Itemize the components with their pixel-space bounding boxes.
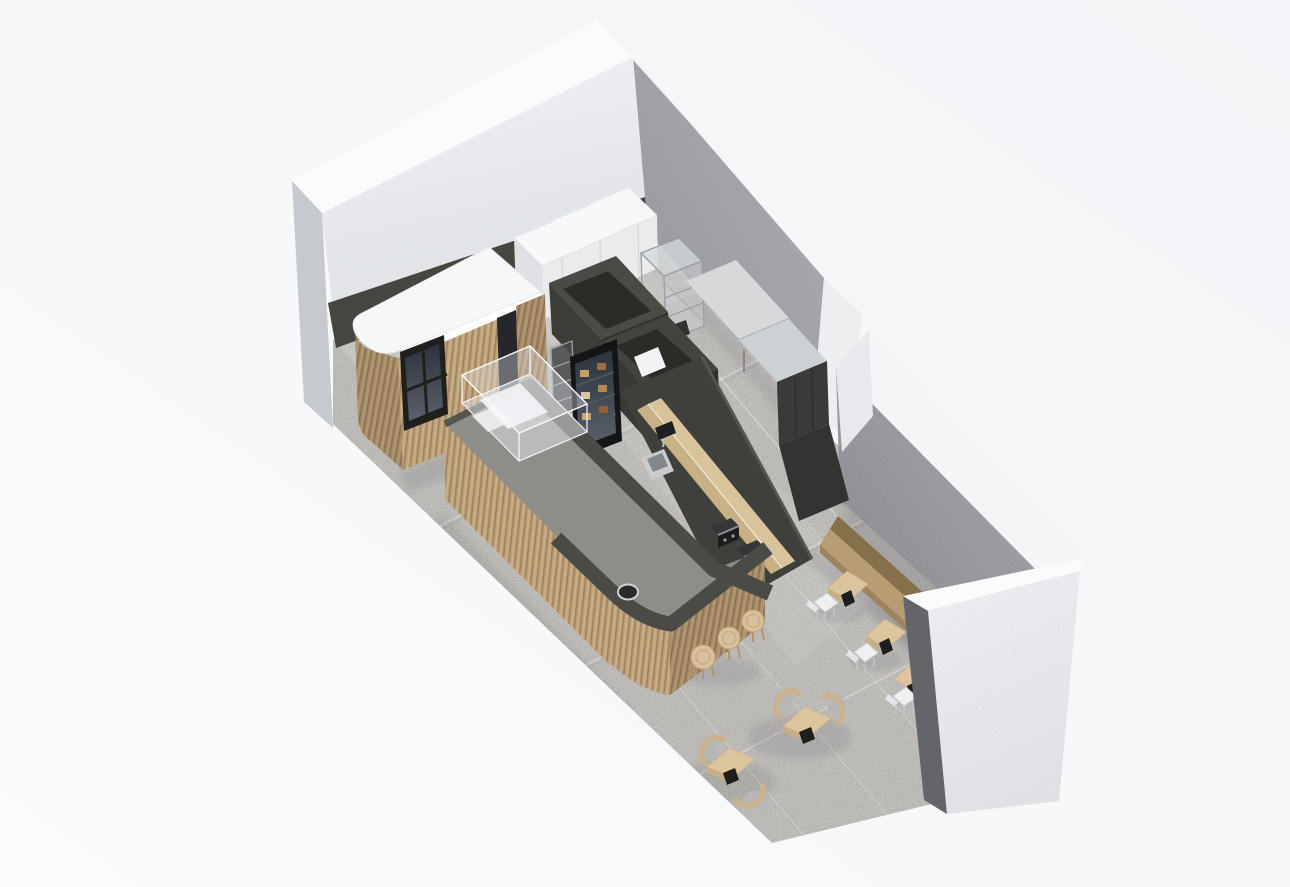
counter-sink (618, 585, 638, 600)
portafilter (723, 538, 726, 541)
southeast-wall (903, 558, 1086, 814)
cafe-isometric-render (0, 0, 1290, 887)
se-wall-texture (928, 571, 1080, 814)
render-viewport (0, 0, 1290, 887)
portafilter (731, 534, 734, 537)
kiosk-pass-window (400, 335, 448, 431)
